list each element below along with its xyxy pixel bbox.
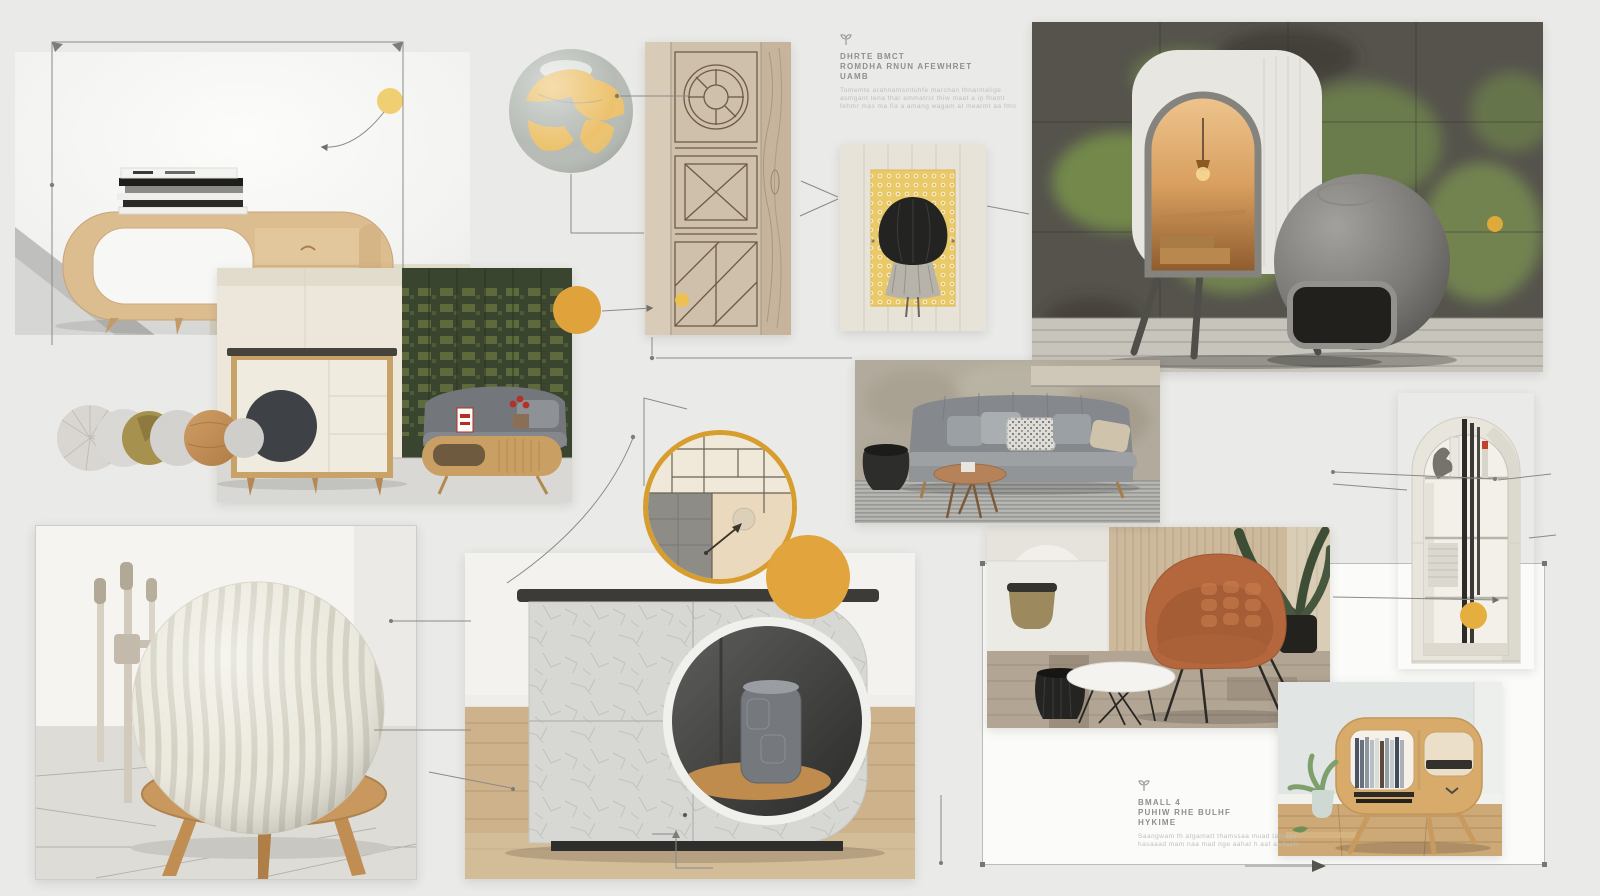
green-panel-interior-photo[interactable] [217, 268, 572, 502]
swatch-pale[interactable] [224, 418, 264, 458]
bottom-annotation: BMALL 4 PUHIW RHE BULHF HYKIME Saangwam … [1138, 778, 1300, 849]
note-heading-line: DHRTE BMCT [840, 52, 1016, 62]
moodboard-canvas: DHRTE BMCT ROMDHA RNUN AFEWHRET UAMB Tom… [0, 0, 1600, 896]
note-body-line: Saangwam th atgamatt thamssaa muad tamag… [1138, 833, 1300, 841]
accent-circle-bookshelf[interactable] [1460, 602, 1487, 629]
wooden-mini-console-photo[interactable] [1278, 682, 1502, 856]
top-annotation: DHRTE BMCT ROMDHA RNUN AFEWHRET UAMB Tom… [840, 32, 1016, 111]
sprout-marker-icon [1138, 778, 1150, 792]
wood-door-sketch[interactable] [645, 42, 791, 335]
note-body-line: fehmr mas ma fia a amang wagam at mearmt… [840, 103, 1016, 111]
textured-sphere-stool-photo[interactable] [35, 525, 417, 880]
accent-circle-large[interactable] [766, 535, 850, 619]
acoustic-pod-photo[interactable] [1032, 22, 1543, 372]
gray-sofa-photo[interactable] [855, 360, 1160, 523]
arched-bookshelf-photo[interactable] [1398, 393, 1534, 669]
sprout-marker-icon [840, 32, 852, 46]
textured-sphere [132, 582, 384, 834]
note-body-line: hasaaad mam naa mad nge aahat h aat aada… [1138, 841, 1300, 849]
crackle-cabinet-photo[interactable] [465, 553, 915, 879]
draped-cloth-artwork[interactable] [840, 145, 986, 331]
note-heading-line: PUHIW RHE BULHF [1138, 808, 1300, 818]
card-handle[interactable] [980, 862, 985, 867]
note-heading-line: BMALL 4 [1138, 798, 1300, 808]
note-body-line: asmgant tena thar ammatrst thiw maat a i… [840, 95, 1016, 103]
note-heading-line: HYKIME [1138, 818, 1300, 828]
accent-dot [1487, 216, 1503, 232]
note-heading-line: ROMDHA RNUN AFEWHRET [840, 62, 1016, 72]
card-handle[interactable] [1542, 862, 1547, 867]
accent-circle-small[interactable] [377, 88, 403, 114]
accent-dot [675, 293, 689, 307]
card-handle[interactable] [1542, 561, 1547, 566]
gray-sphere [1274, 174, 1450, 350]
globe-illustration[interactable] [508, 48, 634, 174]
material-swatches[interactable] [52, 400, 264, 476]
book-stack [117, 168, 247, 214]
accent-circle-medium[interactable] [553, 286, 601, 334]
card-handle[interactable] [980, 561, 985, 566]
note-heading-line: UAMB [840, 72, 1016, 82]
crackle-cabinet [517, 589, 879, 851]
olive-pot [1007, 583, 1057, 629]
note-body-line: Tomemte arahnamslntuhfe marchan thnarmal… [840, 87, 1016, 95]
